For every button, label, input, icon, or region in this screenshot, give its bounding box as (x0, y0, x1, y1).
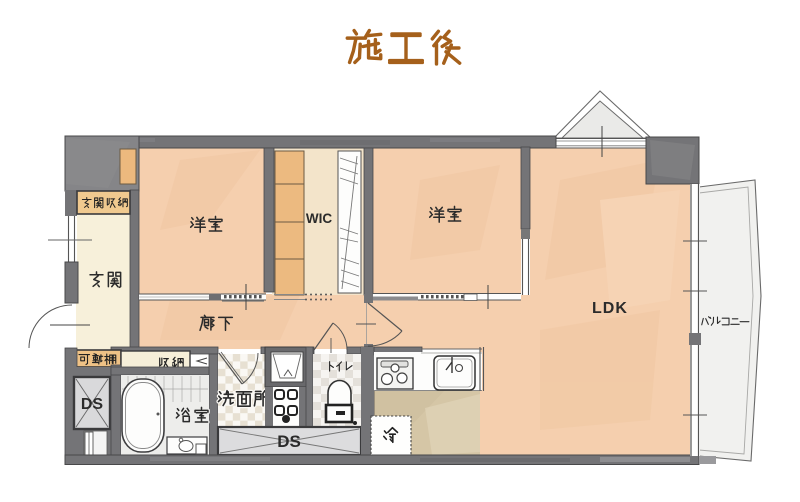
svg-text:WIC: WIC (306, 211, 332, 226)
svg-text:DS: DS (81, 396, 104, 413)
svg-text:LDK: LDK (592, 300, 628, 317)
svg-text:DS: DS (277, 432, 301, 451)
